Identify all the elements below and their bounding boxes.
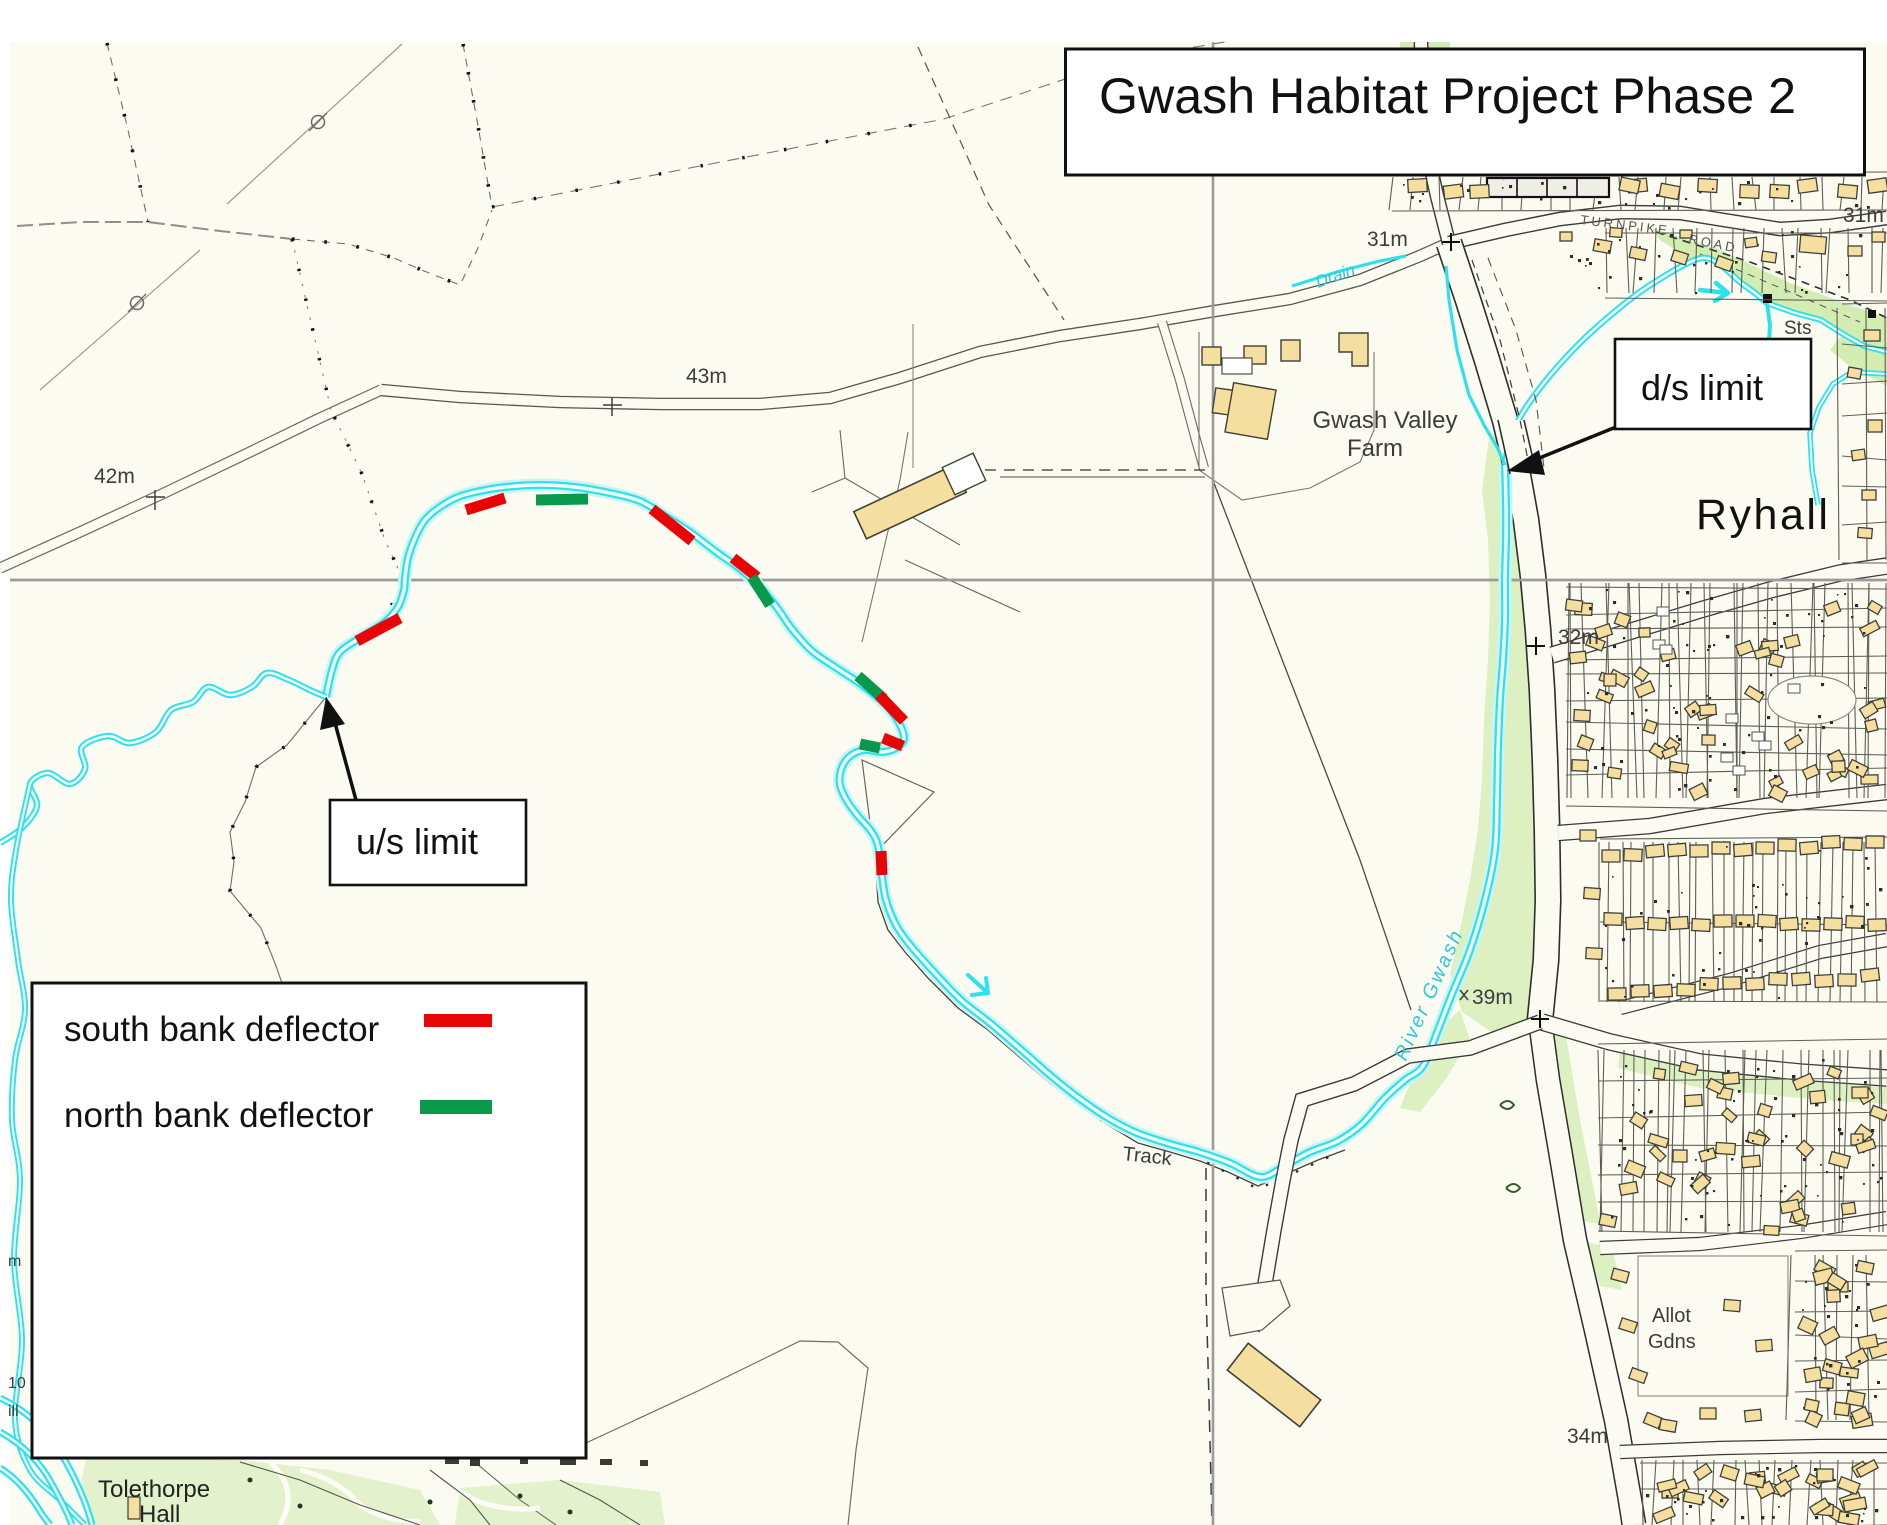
svg-text:south bank deflector: south bank deflector [64, 1010, 380, 1049]
svg-text:Tolethorpe: Tolethorpe [98, 1476, 210, 1503]
svg-text:Farm: Farm [1347, 435, 1403, 462]
svg-text:Hall: Hall [139, 1501, 180, 1525]
svg-text:ill: ill [8, 1403, 19, 1420]
svg-text:Gwash Valley: Gwash Valley [1313, 407, 1458, 434]
svg-text:m: m [8, 1253, 21, 1270]
svg-text:42m: 42m [94, 465, 135, 488]
svg-text:31m: 31m [1843, 204, 1884, 227]
svg-text:34m: 34m [1567, 1425, 1608, 1448]
svg-text:10: 10 [8, 1375, 26, 1392]
svg-text:Gdns: Gdns [1648, 1331, 1696, 1353]
svg-text:Ryhall: Ryhall [1696, 491, 1831, 539]
svg-text:Sts: Sts [1784, 318, 1811, 339]
svg-text:Gwash Habitat Project Phase 2: Gwash Habitat Project Phase 2 [1099, 67, 1796, 124]
svg-text:43m: 43m [686, 365, 727, 388]
svg-text:32m: 32m [1558, 626, 1599, 649]
svg-text:north bank deflector: north bank deflector [64, 1096, 374, 1135]
svg-text:d/s limit: d/s limit [1641, 367, 1763, 408]
svg-text:u/s limit: u/s limit [356, 821, 478, 862]
svg-text:39m: 39m [1472, 986, 1513, 1009]
svg-text:31m: 31m [1367, 228, 1408, 251]
svg-text:Allot: Allot [1652, 1305, 1691, 1327]
